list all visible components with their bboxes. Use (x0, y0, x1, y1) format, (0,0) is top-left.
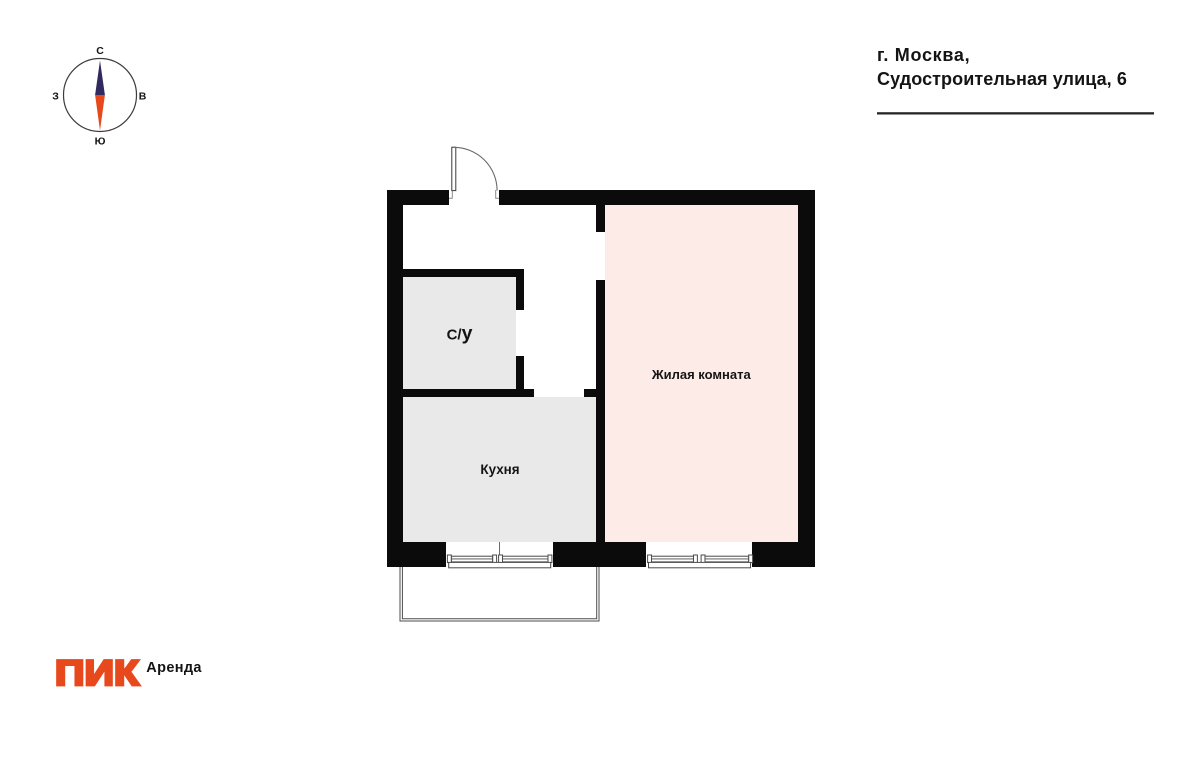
svg-text:С: С (96, 45, 104, 57)
svg-text:Кухня: Кухня (480, 462, 519, 477)
svg-text:Ю: Ю (95, 136, 106, 148)
svg-text:г. Москва,: г. Москва, (877, 45, 970, 65)
svg-text:В: В (139, 90, 147, 102)
svg-text:З: З (52, 90, 59, 102)
svg-text:Аренда: Аренда (146, 660, 202, 676)
svg-text:Жилая комната: Жилая комната (651, 367, 752, 382)
svg-text:ПИК: ПИК (55, 654, 140, 693)
svg-text:С/у: С/у (447, 323, 473, 345)
svg-text:Судостроительная улица, 6: Судостроительная улица, 6 (877, 69, 1127, 89)
